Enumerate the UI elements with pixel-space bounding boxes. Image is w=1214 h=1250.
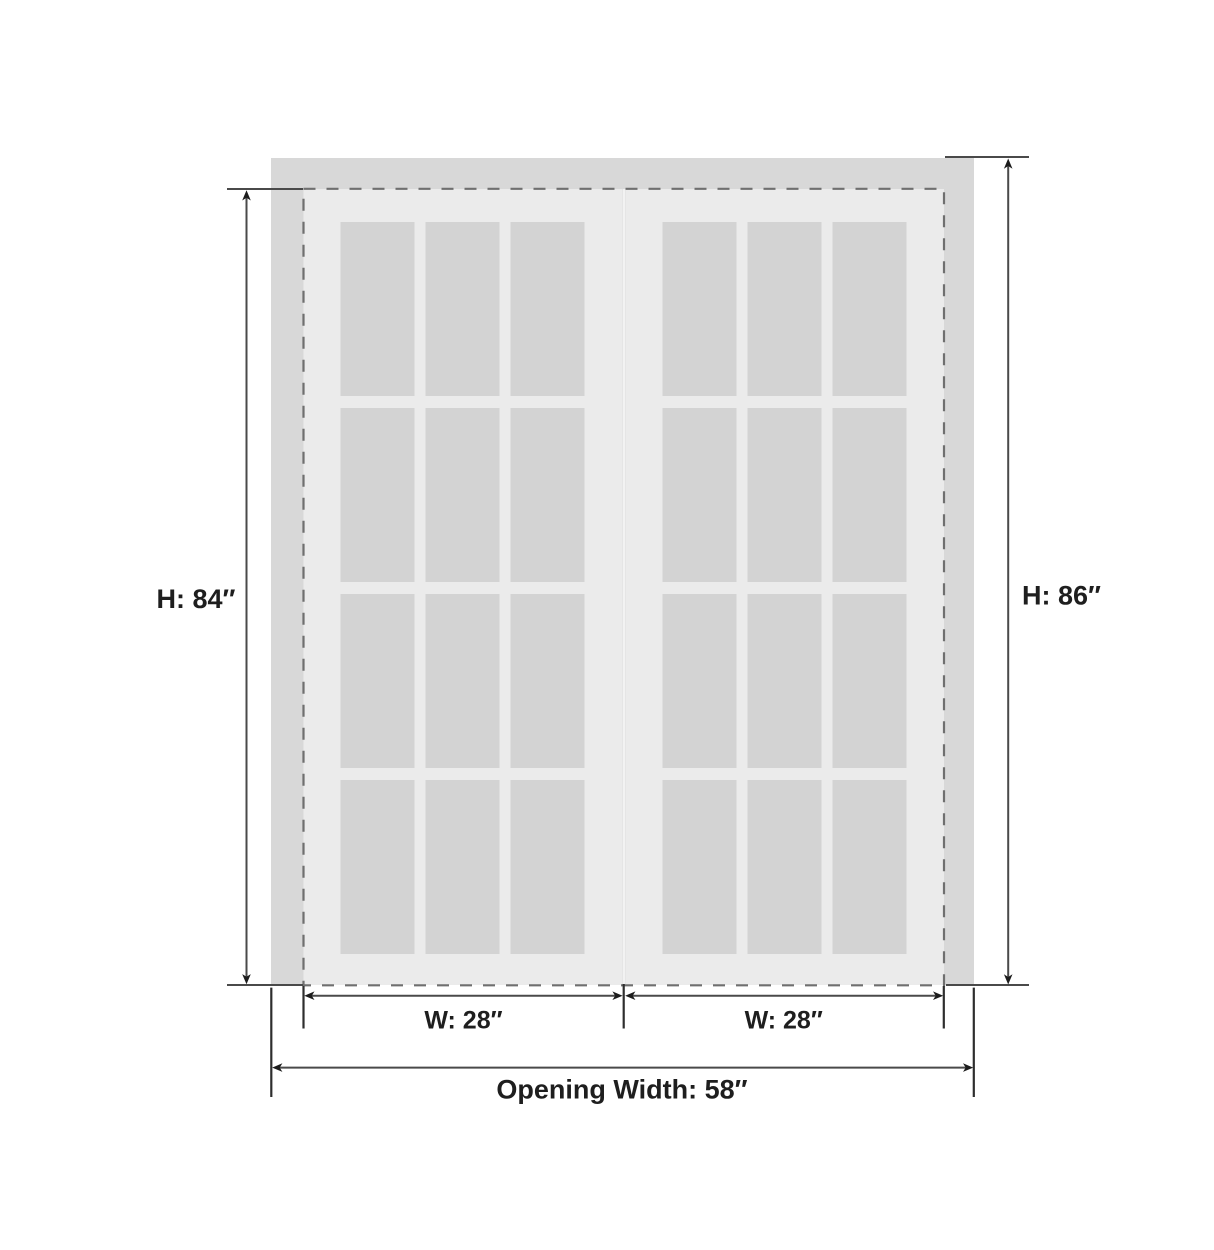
svg-text:H: 84″: H: 84″ [157,584,236,614]
svg-text:W: 28″: W: 28″ [745,1007,823,1035]
svg-text:H: 86″: H: 86″ [1022,581,1101,611]
svg-text:W: 28″: W: 28″ [424,1007,502,1035]
svg-text:Opening Width: 58″: Opening Width: 58″ [496,1075,747,1105]
